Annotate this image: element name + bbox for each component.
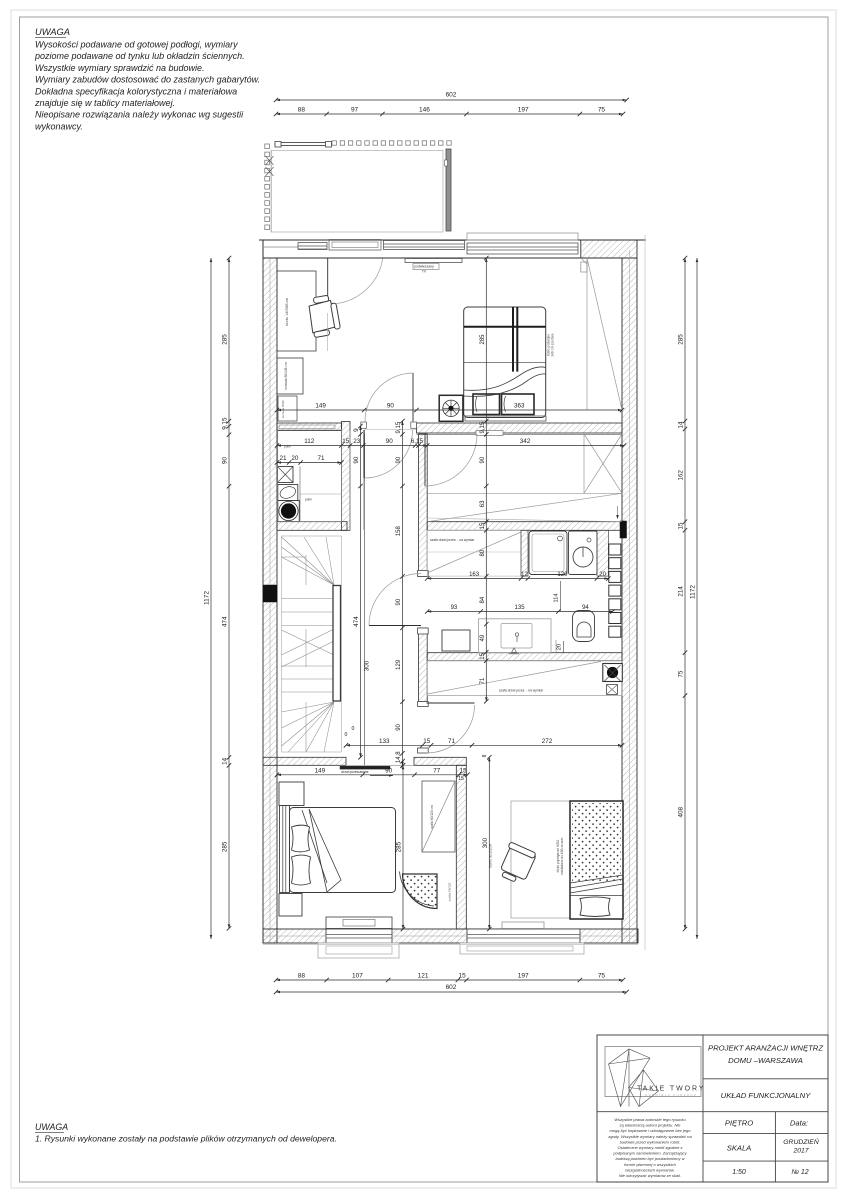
svg-text:Data:: Data: bbox=[790, 1119, 808, 1128]
svg-text:15: 15 bbox=[460, 767, 468, 774]
svg-text:71: 71 bbox=[480, 677, 486, 684]
svg-text:90: 90 bbox=[396, 598, 402, 605]
svg-text:niezgodnościach wymiarów.: niezgodnościach wymiarów. bbox=[625, 1167, 675, 1172]
svg-text:15: 15 bbox=[480, 652, 486, 659]
svg-text:71: 71 bbox=[318, 455, 326, 462]
svg-text:0: 0 bbox=[345, 732, 348, 738]
svg-text:PROJEKT ARANŻACJI WNĘTRZ: PROJEKT ARANŻACJI WNĘTRZ bbox=[708, 1044, 823, 1053]
svg-text:90: 90 bbox=[353, 456, 360, 464]
svg-text:są własnością autora projektu.: są własnością autora projektu. Nie bbox=[620, 1123, 682, 1128]
svg-text:285: 285 bbox=[222, 841, 229, 852]
svg-text:80: 80 bbox=[480, 549, 486, 556]
svg-text:1. Rysunki wykonane zostały na: 1. Rysunki wykonane zostały na podstawie… bbox=[35, 1134, 337, 1144]
svg-text:Wysokości podawane od gotowej: Wysokości podawane od gotowej podłogi, w… bbox=[35, 40, 238, 50]
svg-text:20: 20 bbox=[599, 572, 606, 578]
svg-text:408: 408 bbox=[678, 807, 685, 818]
svg-text:133: 133 bbox=[379, 738, 390, 745]
svg-text:285: 285 bbox=[480, 334, 486, 345]
svg-text:budową powinien być powiadomio: budową powinien być powiadomiony w bbox=[616, 1156, 686, 1161]
svg-text:197: 197 bbox=[518, 107, 529, 114]
svg-text:Dokładna specyfikacja koloryst: Dokładna specyfikacja kolorystyczna i ma… bbox=[35, 86, 237, 96]
svg-text:75: 75 bbox=[598, 973, 606, 980]
svg-text:300: 300 bbox=[364, 660, 371, 671]
svg-text:342: 342 bbox=[520, 438, 531, 445]
svg-text:9,15: 9,15 bbox=[480, 421, 486, 433]
svg-text:rozkładane do 160cm szer.: rozkładane do 160cm szer. bbox=[560, 837, 564, 875]
svg-text:1172: 1172 bbox=[204, 591, 211, 605]
svg-text:1172: 1172 bbox=[690, 585, 697, 599]
svg-text:15: 15 bbox=[480, 522, 486, 529]
svg-text:GABRIELA KURZACZ: GABRIELA KURZACZ bbox=[645, 1093, 697, 1097]
svg-text:UWAGA: UWAGA bbox=[35, 1122, 68, 1132]
svg-text:90: 90 bbox=[385, 767, 393, 774]
svg-text:1:50: 1:50 bbox=[732, 1169, 746, 1176]
svg-text:Nie odczytywać wymiarów ze ska: Nie odczytywać wymiarów ze skali. bbox=[619, 1173, 681, 1178]
svg-text:158: 158 bbox=[396, 526, 402, 537]
svg-text:23: 23 bbox=[353, 438, 361, 445]
svg-text:602: 602 bbox=[446, 984, 457, 991]
svg-text:Wszystkie prawa autorskie tego: Wszystkie prawa autorskie tego rysunku bbox=[614, 1117, 686, 1122]
svg-text:DOMU –WARSZAWA: DOMU –WARSZAWA bbox=[728, 1056, 803, 1065]
svg-text:63: 63 bbox=[480, 500, 486, 507]
svg-text:8: 8 bbox=[482, 754, 488, 757]
svg-text:602: 602 bbox=[446, 92, 457, 99]
svg-text:mogą być kopiowane i udostępni: mogą być kopiowane i udostępniane bez je… bbox=[610, 1128, 692, 1133]
svg-text:12: 12 bbox=[521, 572, 528, 578]
svg-text:363: 363 bbox=[514, 403, 525, 410]
svg-text:14,8: 14,8 bbox=[396, 751, 402, 763]
svg-text:SKALA: SKALA bbox=[727, 1144, 751, 1153]
svg-text:21: 21 bbox=[280, 455, 288, 462]
svg-text:149: 149 bbox=[315, 403, 326, 410]
svg-text:474: 474 bbox=[353, 616, 360, 627]
svg-text:90: 90 bbox=[396, 723, 402, 730]
svg-text:wykonawcy.: wykonawcy. bbox=[35, 121, 83, 131]
svg-text:komoda 80/148 cm: komoda 80/148 cm bbox=[284, 362, 288, 389]
svg-text:9,15: 9,15 bbox=[396, 421, 402, 433]
svg-text:15: 15 bbox=[678, 522, 685, 530]
svg-text:14: 14 bbox=[678, 421, 685, 429]
svg-text:Ostateczne wymiary mebli zgodn: Ostateczne wymiary mebli zgodnie z bbox=[618, 1145, 683, 1150]
svg-text:komoda 45/60: komoda 45/60 bbox=[281, 400, 285, 418]
svg-text:49: 49 bbox=[480, 634, 486, 641]
svg-text:szafa 60/120 cm: szafa 60/120 cm bbox=[430, 805, 434, 829]
svg-text:107: 107 bbox=[352, 973, 363, 980]
svg-text:szafa drzwi przes. - na wymiar: szafa drzwi przes. - na wymiar bbox=[430, 538, 475, 542]
svg-text:97: 97 bbox=[351, 107, 359, 114]
svg-text:Wszystkie wymiary sprawdzić na: Wszystkie wymiary sprawdzić na budowie. bbox=[35, 63, 205, 73]
svg-text:112: 112 bbox=[304, 438, 315, 445]
svg-text:15: 15 bbox=[423, 738, 431, 745]
svg-text:№ 12: № 12 bbox=[791, 1169, 808, 1176]
svg-text:272: 272 bbox=[542, 738, 553, 745]
svg-text:UWAGA: UWAGA bbox=[35, 27, 70, 37]
svg-text:biurko 140/365 cm: biurko 140/365 cm bbox=[285, 298, 289, 326]
svg-text:88: 88 bbox=[298, 973, 306, 980]
svg-text:podpisanym zamówieniem. Zarząd: podpisanym zamówieniem. Zarządzający bbox=[612, 1151, 687, 1156]
svg-text:90: 90 bbox=[386, 438, 394, 445]
svg-text:75: 75 bbox=[598, 107, 606, 114]
svg-text:149: 149 bbox=[315, 767, 326, 774]
svg-text:77: 77 bbox=[433, 767, 441, 774]
svg-text:90: 90 bbox=[387, 403, 395, 410]
svg-text:94: 94 bbox=[582, 605, 589, 611]
svg-text:0: 0 bbox=[352, 726, 355, 732]
svg-text:6,15: 6,15 bbox=[411, 438, 424, 445]
svg-text:285: 285 bbox=[396, 841, 403, 852]
svg-text:PIĘTRO: PIĘTRO bbox=[725, 1119, 753, 1128]
svg-text:140 cm szerokie: 140 cm szerokie bbox=[551, 333, 555, 356]
svg-text:93: 93 bbox=[451, 605, 458, 611]
svg-text:zgody. Wszystkie wymiary należ: zgody. Wszystkie wymiary należy sprawdzi… bbox=[607, 1134, 692, 1139]
svg-text:Wymiary zabudów dostosować do: Wymiary zabudów dostosować do zastanych … bbox=[35, 75, 260, 85]
svg-text:135: 135 bbox=[515, 605, 526, 611]
svg-text:15: 15 bbox=[342, 438, 350, 445]
svg-text:poziome podawane od tynku lub: poziome podawane od tynku lub okładzin ś… bbox=[34, 51, 245, 61]
svg-text:474: 474 bbox=[222, 616, 229, 627]
svg-text:formie pisemnej o wszystkich: formie pisemnej o wszystkich bbox=[624, 1162, 677, 1167]
svg-text:TAKIE TWORY: TAKIE TWORY bbox=[637, 1086, 705, 1093]
svg-text:TV: TV bbox=[422, 270, 427, 274]
svg-text:znajduje się w tablicy materia: znajduje się w tablicy materiałowej. bbox=[34, 98, 175, 108]
svg-text:2017: 2017 bbox=[792, 1148, 808, 1155]
svg-text:szafka 80/120: szafka 80/120 bbox=[448, 882, 452, 901]
svg-text:polki: polki bbox=[305, 498, 312, 502]
svg-text:300: 300 bbox=[482, 837, 489, 848]
svg-text:20: 20 bbox=[291, 455, 299, 462]
svg-text:90: 90 bbox=[396, 456, 402, 463]
svg-text:90: 90 bbox=[480, 456, 486, 463]
svg-text:120: 120 bbox=[557, 572, 568, 578]
svg-text:budowie przed wykonaniem robót: budowie przed wykonaniem robót. bbox=[620, 1139, 681, 1144]
svg-text:163: 163 bbox=[469, 572, 480, 578]
svg-text:Nieopisane rozwiązania należy: Nieopisane rozwiązania należy wykonac wg… bbox=[35, 110, 244, 120]
svg-text:15: 15 bbox=[458, 776, 464, 782]
svg-text:162: 162 bbox=[678, 470, 685, 481]
svg-text:214: 214 bbox=[678, 586, 685, 597]
svg-text:114: 114 bbox=[554, 593, 560, 603]
svg-text:15: 15 bbox=[459, 973, 467, 980]
svg-text:podwieszany: podwieszany bbox=[414, 265, 434, 269]
svg-text:88: 88 bbox=[298, 107, 306, 114]
svg-text:84: 84 bbox=[480, 596, 486, 603]
svg-text:polki: polki bbox=[284, 445, 291, 449]
svg-text:20: 20 bbox=[557, 644, 563, 650]
svg-text:75: 75 bbox=[678, 670, 685, 678]
svg-text:GRUDZIEŃ: GRUDZIEŃ bbox=[783, 1137, 819, 1146]
svg-text:121: 121 bbox=[418, 973, 429, 980]
svg-text:14: 14 bbox=[222, 757, 229, 765]
svg-text:9: 9 bbox=[353, 428, 360, 432]
svg-text:129: 129 bbox=[396, 659, 402, 670]
svg-text:9,15: 9,15 bbox=[222, 417, 229, 430]
svg-text:197: 197 bbox=[518, 973, 529, 980]
svg-text:71: 71 bbox=[448, 738, 456, 745]
svg-text:90: 90 bbox=[222, 456, 229, 464]
svg-text:UKŁAD FUNKCJONALNY: UKŁAD FUNKCJONALNY bbox=[721, 1091, 812, 1100]
svg-text:szafa drzwi przes. - na wymiar: szafa drzwi przes. - na wymiar bbox=[499, 689, 544, 693]
svg-text:285: 285 bbox=[222, 334, 229, 345]
svg-text:285: 285 bbox=[678, 334, 685, 345]
svg-text:146: 146 bbox=[419, 107, 430, 114]
